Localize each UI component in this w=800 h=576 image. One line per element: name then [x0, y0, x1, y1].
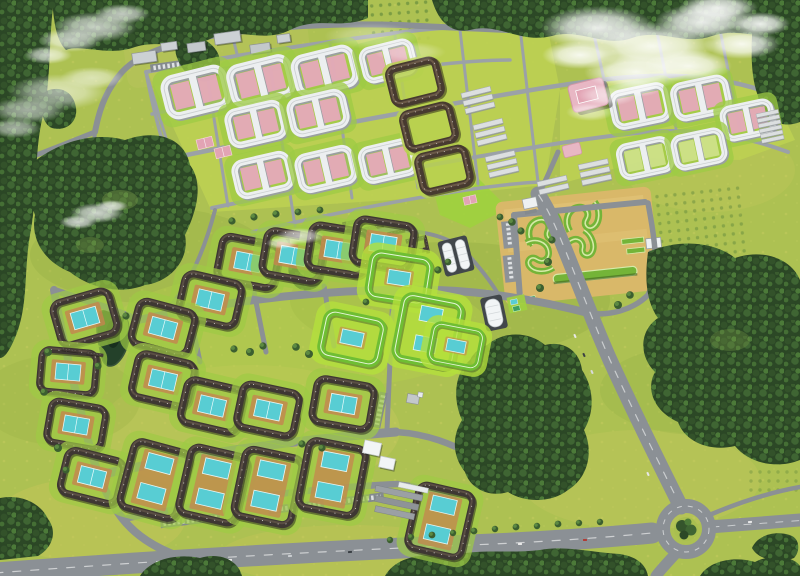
industrial-building	[277, 33, 293, 44]
forest-clearing	[710, 329, 750, 351]
masterplan-scene	[0, 0, 800, 576]
masterplan-aerial-rendering	[0, 0, 800, 576]
roundabout	[663, 506, 709, 552]
forest-clearing	[76, 237, 104, 253]
highway-east-arm	[709, 520, 800, 527]
